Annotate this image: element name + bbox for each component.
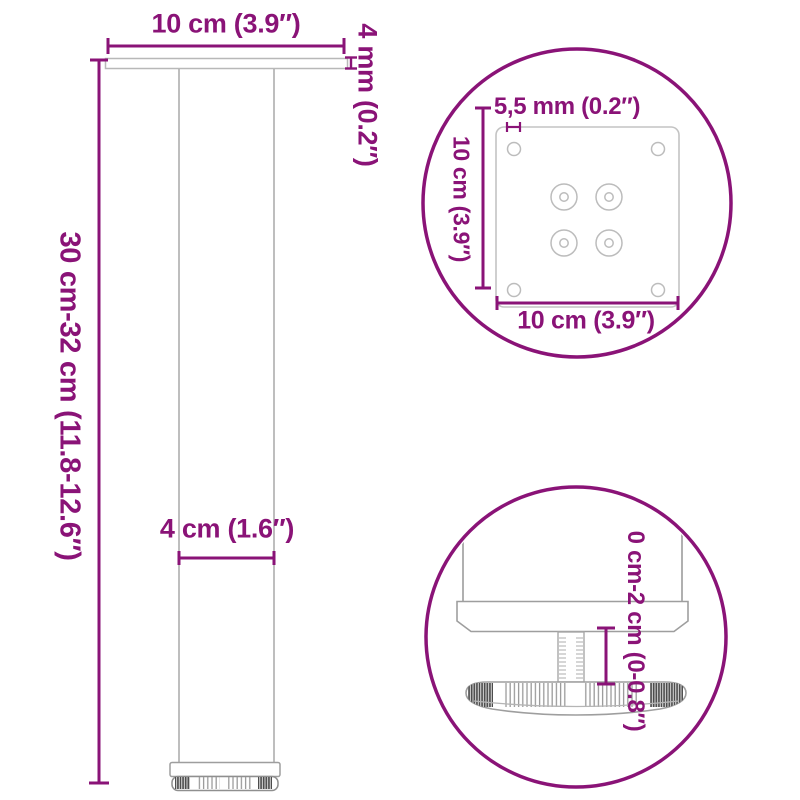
top-width-dimension	[108, 38, 344, 54]
leg-foot	[170, 763, 280, 791]
top-width-label: 10 cm (3.9″)	[152, 11, 301, 38]
tube-width-dimension	[179, 551, 274, 565]
plate-width-label: 10 cm (3.9″)	[517, 309, 655, 334]
dimension-diagram: 10 cm (3.9″) 4 mm (0.2″) 30 cm-32 cm (11…	[0, 0, 800, 800]
tube-width-label: 4 cm (1.6″)	[160, 516, 294, 543]
top-mounting-plate	[106, 59, 348, 69]
adjustment-range-label: 0 cm-2 cm (0-0.8″)	[623, 531, 647, 732]
leg-height-dimension	[89, 60, 109, 783]
diagram-canvas	[0, 0, 800, 800]
threaded-stem	[558, 632, 584, 682]
hole-diameter-label: 5,5 mm (0.2″)	[494, 95, 640, 119]
foot-detail-view	[426, 487, 726, 787]
main-leg-view	[89, 38, 357, 791]
plate-depth-label: 10 cm (3.9″)	[450, 136, 473, 262]
foot-cap	[457, 602, 688, 632]
plate-thickness-label: 4 mm (0.2″)	[354, 23, 381, 166]
leg-tube	[179, 69, 274, 762]
leg-height-label: 30 cm-32 cm (11.8-12.6″)	[55, 231, 84, 560]
mounting-plate-top-view	[496, 127, 679, 307]
adjustable-foot-disc	[466, 682, 686, 715]
